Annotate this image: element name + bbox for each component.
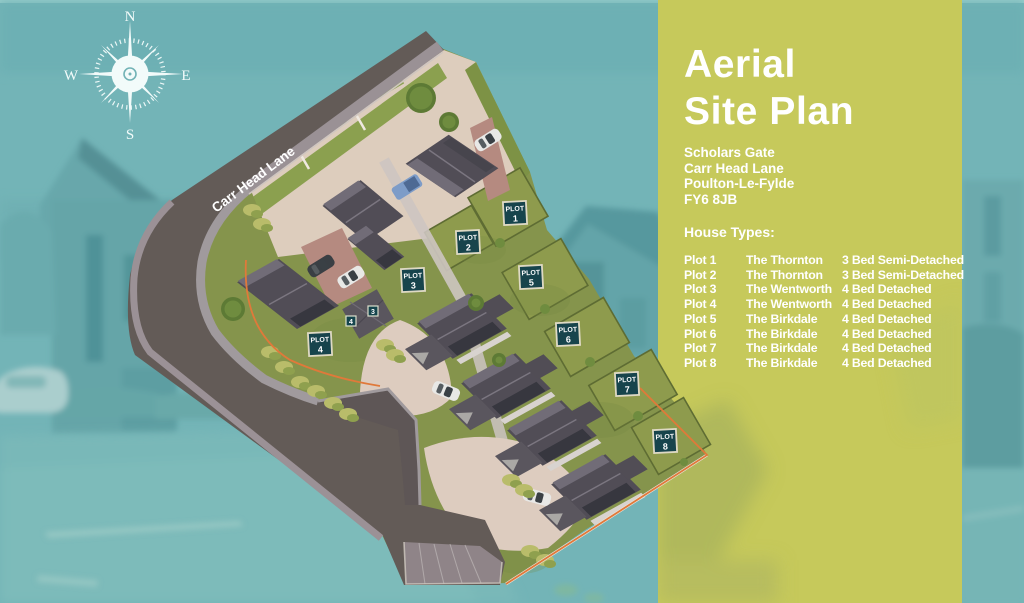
svg-text:W: W bbox=[64, 68, 79, 84]
svg-text:PLOT: PLOT bbox=[458, 234, 478, 242]
svg-text:N: N bbox=[125, 9, 136, 25]
svg-text:S: S bbox=[126, 127, 134, 143]
svg-text:7: 7 bbox=[625, 384, 631, 394]
svg-text:PLOT: PLOT bbox=[558, 326, 578, 334]
svg-text:PLOT: PLOT bbox=[403, 272, 423, 280]
svg-text:3: 3 bbox=[371, 309, 375, 316]
svg-text:PLOT: PLOT bbox=[617, 376, 637, 384]
svg-text:PLOT: PLOT bbox=[505, 205, 525, 213]
svg-text:PLOT: PLOT bbox=[310, 336, 330, 344]
svg-text:6: 6 bbox=[566, 334, 572, 344]
svg-text:4: 4 bbox=[318, 344, 324, 354]
svg-text:4: 4 bbox=[349, 319, 353, 326]
svg-text:2: 2 bbox=[466, 242, 472, 252]
svg-text:1: 1 bbox=[513, 213, 519, 223]
svg-text:8: 8 bbox=[663, 441, 669, 451]
svg-text:PLOT: PLOT bbox=[521, 269, 541, 277]
svg-text:E: E bbox=[181, 68, 190, 84]
svg-text:3: 3 bbox=[411, 280, 417, 290]
svg-text:5: 5 bbox=[529, 277, 535, 287]
svg-text:PLOT: PLOT bbox=[655, 433, 675, 441]
